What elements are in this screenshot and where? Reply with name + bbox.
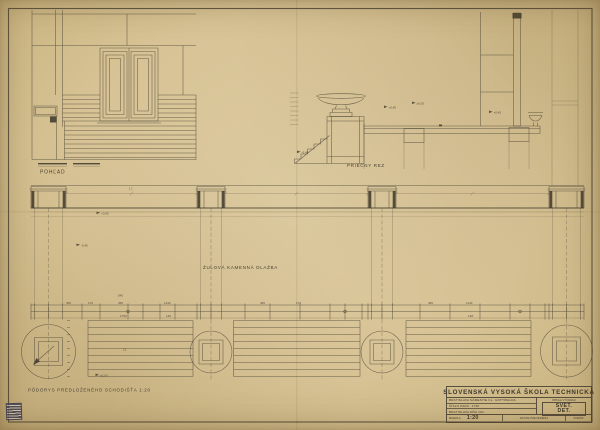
facade-bench (34, 106, 57, 116)
dimension-strip: 450 170 540 450 1143 1750 140 450 170 45… (31, 294, 584, 320)
level-text: ±0,00 (417, 102, 425, 106)
plinth-block (367, 187, 398, 209)
level-text: -0,45 (81, 244, 88, 248)
dim-text: 170 (88, 301, 93, 305)
facade-steps (32, 95, 196, 160)
drawing-sheet: POHĽAD (0, 0, 600, 430)
title-block: SLOVENSKÁ VYSOKÁ ŠKOLA TECHNICKÁ BRATISL… (446, 386, 592, 423)
stair-plan: ŽULOVÁ KAMENNÁ DLAŽBA 450 170 540 450 11… (22, 208, 593, 393)
section-mast (481, 12, 522, 126)
level-text: -0,45 (302, 151, 309, 155)
level-flags-plan: +0,05 -0,45 ±0,00 (77, 212, 109, 380)
plinth-block (30, 187, 68, 209)
dim-text: 1143 (164, 301, 171, 305)
plinth-elevation-band (30, 186, 586, 209)
section-steps (295, 136, 330, 164)
dim-text: 450 (118, 301, 123, 305)
plinth-block (548, 187, 586, 209)
dim-text: 170 (296, 301, 301, 305)
level-text: ±0,00 (100, 374, 108, 378)
cross-section: -0,45 +0,45 ±0,00 +0,45 PRIEČNY REZ (290, 10, 578, 186)
label-dlazba: ŽULOVÁ KAMENNÁ DLAŽBA (203, 263, 278, 270)
dim-text: 450 (260, 301, 265, 305)
dim-text: 450 (428, 301, 433, 305)
section-urn (317, 94, 366, 117)
title-block-place-date: BRATISLAVA DŇA 194 (447, 409, 536, 414)
support-block (404, 129, 424, 143)
caption-strip (38, 163, 67, 164)
dim-text: 540 (118, 294, 123, 298)
dim-text: 450 (66, 301, 71, 305)
label-priecny-rez: PRIEČNY REZ (347, 162, 385, 168)
facade-elevation: POHĽAD (32, 10, 196, 176)
dim-text: 140 (166, 314, 171, 318)
label-podorys: PÔDORYS PREDLOŽENÉHO SCHODIŠŤA 1:20 (28, 386, 151, 393)
slab-fitting (439, 125, 442, 127)
level-text: +0,45 (494, 111, 502, 115)
title-block-footer-mid: DATUM PREVEDENIA (503, 415, 565, 421)
tread-group (234, 321, 361, 377)
title-block-school: SLOVENSKÁ VYSOKÁ ŠKOLA TECHNICKÁ (447, 387, 591, 398)
scale-label: MIERKA (449, 416, 461, 420)
plan-note: 12 (123, 348, 127, 352)
axis-lines (49, 208, 567, 380)
title-block-content-label: OBSAH VÝKRESU (537, 398, 591, 402)
level-text: +0,45 (389, 106, 397, 110)
label-pohlad: POHĽAD (40, 170, 65, 176)
tread-group (88, 321, 193, 377)
dim-text: 1750 (120, 314, 127, 318)
sheet-border (9, 9, 593, 423)
dim-text: 148 (468, 314, 473, 318)
dim-text: 1143 (466, 301, 473, 305)
caption-strip (73, 163, 100, 164)
archive-stamp (6, 403, 23, 421)
section-pedestal (327, 117, 364, 164)
facade-corner-block (50, 117, 57, 123)
tread-group (406, 321, 531, 377)
band-dimension-line (64, 187, 551, 195)
drawing-canvas: POHĽAD (0, 0, 600, 430)
content-line-2: DET. (543, 409, 585, 415)
level-text: +0,05 (101, 212, 109, 216)
scale-value: 1:20 (467, 415, 479, 421)
support-block (509, 128, 529, 142)
facade-door (97, 48, 161, 123)
plinth-block (196, 187, 227, 209)
title-block-scale: MIERKA 1:20 (447, 415, 503, 421)
title-block-footer-sign: PODPIS (565, 415, 591, 421)
section-basin (528, 113, 543, 127)
